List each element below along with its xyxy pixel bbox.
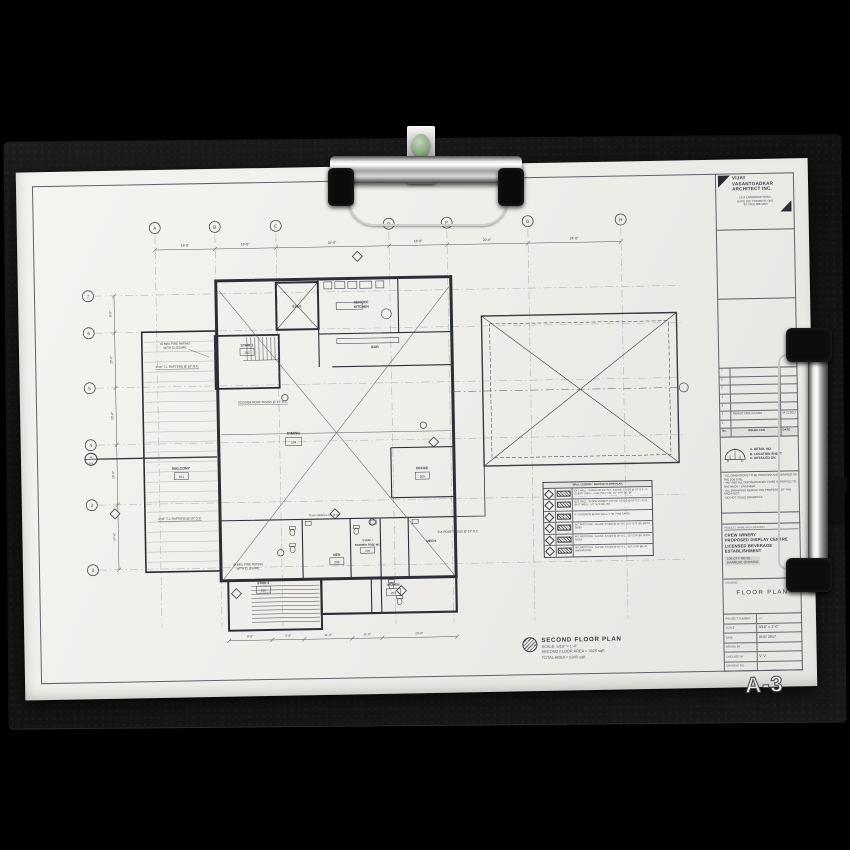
dim-top: 16'-0": [414, 239, 424, 243]
clip-metal-bar: [330, 156, 522, 183]
plan-title-block: SECOND FLOOR PLAN SCALE: 3/16" = 1'-0" S…: [522, 636, 622, 661]
room-tag-women: 207: [391, 591, 397, 595]
info-label: PROJECT NUMBER: [724, 614, 757, 623]
grid-col-label: A: [153, 226, 157, 231]
logo-triangle-icon: [780, 200, 791, 211]
wall-hatch-swatch: [556, 511, 573, 522]
legend-text: INT. PARTITION : 2x6 WD. STUDS @ 16" O.C…: [573, 522, 652, 531]
room-tag-balcony: 201: [179, 475, 185, 479]
dim-top: 24'-0": [570, 236, 580, 240]
room-tag-stair1: 202: [244, 351, 250, 355]
clip-rubber-grip: [786, 328, 832, 362]
grid-lines: [93, 226, 687, 629]
note-travel-distance: Travel distance 60' (9 m): [309, 513, 340, 518]
info-label: SCALE: [724, 624, 757, 633]
info-label: DATE: [724, 633, 757, 642]
room-label-men: MEN: [333, 553, 341, 557]
room-label-bar: BAR: [371, 345, 379, 349]
room-tag-men: 208: [334, 560, 340, 564]
building-walls: [141, 277, 457, 633]
legend-text: EXT. WALL : STONE VENEER, 2x6 WD. STUDS …: [573, 499, 652, 508]
rev-no-header: No.: [721, 429, 732, 437]
kitchen-fixtures: [324, 281, 399, 344]
architect-name-3: ARCHITECT INC.: [732, 186, 773, 192]
room-tag-staff: 209: [365, 549, 370, 553]
plan-title: SECOND FLOOR PLAN: [541, 636, 621, 644]
rev-no: 6: [720, 377, 731, 385]
dim-top: 24'-0": [328, 241, 338, 245]
room-label-staff2: BARRIER FREE WC: [355, 542, 381, 546]
title-block-empty-box: [717, 229, 796, 299]
room-label-mech: MECH.: [426, 539, 436, 543]
rev-no: 5: [720, 386, 731, 394]
legend-text: INT. PARTITION : 2x4 WD. STUDS @ 16" O.C…: [574, 545, 653, 554]
wall-hatch-swatch: [556, 523, 573, 534]
wall-hatch-swatch: [556, 534, 573, 545]
detail-key-b: B: [727, 459, 729, 463]
door-tags: [275, 392, 429, 556]
rev-no: 4: [720, 394, 731, 402]
sheet-number: A-3: [744, 670, 783, 700]
room-label-staff1: STAFF /: [362, 538, 372, 542]
section-marker-sheet: A-5: [89, 461, 94, 465]
info-value: [757, 665, 802, 666]
dim-left: 8'-0": [108, 311, 112, 317]
note-fire-rating-1b: WITH CLOSURE: [163, 345, 186, 349]
room-label-stair1: STAIR 1: [241, 343, 254, 347]
info-value: 3/16" = 1'-0": [757, 625, 803, 631]
room-label-stair2: STAIR 2: [257, 581, 269, 585]
clip-green-button: [412, 134, 430, 157]
note-scissor-truss: SCISSOR ROOF TRUSS @ 24" O.C.: [238, 400, 288, 405]
project-location-2: HARROW, ONTARIO: [727, 560, 759, 565]
wall-hatch-swatch: [556, 500, 573, 511]
grid-row-bubbles: [82, 291, 98, 576]
section-marker-letter: A: [90, 455, 93, 459]
wall-type-symbol: [544, 488, 556, 499]
clip-rubber-grip: [498, 168, 524, 206]
room-label-elev: ELEV.: [292, 304, 302, 308]
legend-row: INT. PARTITION : 2x4 WD. STUDS @ 16" O.C…: [545, 544, 653, 556]
legend-text: EXT. WALL : SIDING ON 3/4" PLY., 2x6 WD.…: [573, 488, 652, 497]
bottom-dimension-line: [227, 635, 459, 643]
grid-col-label: H: [619, 217, 622, 222]
room-label-office: OFFICE: [416, 466, 429, 470]
clip-rubber-grip: [786, 558, 832, 592]
wall-legend: WALL LEGEND : SECOND FLOOR PLAN EXT. WAL…: [542, 480, 653, 558]
grid-row-label: 4: [89, 443, 92, 448]
info-row: DRAWING NO.: [725, 661, 803, 671]
room-tag-office: 205: [420, 475, 426, 479]
wall-type-symbol: [544, 523, 556, 534]
wall-type-symbol: [544, 511, 556, 522]
rev-no: 1: [720, 420, 731, 428]
dim-bottom: 5'-0": [285, 634, 291, 638]
clip-rubber-grip: [328, 168, 354, 206]
clipboard-photo: 16'-0" 16'-0" 24'-0" 16'-0" 20'-6" 24'-0…: [0, 0, 850, 850]
room-label-dining: DINING: [287, 431, 300, 435]
dim-left: 15'-6": [110, 412, 114, 420]
rev-no: 3: [720, 403, 731, 411]
logo-triangle-icon: [718, 175, 730, 187]
note-rafters-1: 2"x6" T.J. RAFTERS @ 16" O.C.: [156, 364, 200, 369]
dim-top: 16'-0": [241, 242, 251, 246]
dim-top: 20'-6": [483, 238, 493, 242]
left-dimension-line: [112, 294, 121, 572]
dim-bottom: 20'-0": [415, 631, 423, 635]
info-label: DRAWN BY: [724, 643, 757, 652]
room-label-balcony: BALCONY: [172, 466, 190, 470]
grid-col-label: G: [526, 219, 530, 224]
window-tags: [105, 250, 441, 601]
section-marker: [85, 451, 217, 465]
info-value: V. V.: [757, 653, 803, 659]
info-value: [757, 646, 802, 647]
room-tag-dining: 204: [291, 440, 297, 444]
top-dimension-line: [153, 239, 623, 252]
note-rafters-2: 2"x6" T.J. RAFTERS @ 16" O.C.: [158, 516, 202, 521]
floor-plan-drawing: 16'-0" 16'-0" 24'-0" 16'-0" 20'-6" 24'-0…: [34, 180, 703, 662]
north-hatch-icon: [522, 637, 537, 652]
grid-row-label: 6: [87, 331, 90, 336]
info-value: AUG 2017: [757, 634, 803, 640]
grid-row-label: 3: [90, 503, 93, 508]
legend-text: 8" CONCRETE BLOCK WALL, 2 HR. FIRE RATED: [573, 512, 652, 518]
grid-row-label: 5: [88, 386, 91, 391]
dim-left: 17'-6": [112, 533, 116, 541]
wall-type-symbol: [545, 546, 557, 557]
legend-text: INT. PARTITION : 2x4 WD. STUDS @ 16" O.C…: [573, 534, 652, 543]
balcony-rafters: [144, 341, 219, 562]
dim-left: 16'-0": [111, 471, 115, 479]
room-number-boxes: [172, 345, 432, 600]
drawing-sheet: 16'-0" 16'-0" 24'-0" 16'-0" 20'-6" 24'-0…: [16, 158, 818, 700]
clip-metal-bar: [808, 330, 828, 590]
clipboard-clip-top: [330, 126, 522, 236]
rev-no: 7: [719, 369, 730, 377]
note-roof-truss: 2x6 ROOF TRUSS @ 24" O.C.: [438, 529, 480, 534]
clip-wire-handle: [348, 182, 508, 226]
detail-marker-icon: A B C: [723, 446, 747, 462]
wall-type-symbol: [544, 500, 556, 511]
room-label-women: WOMEN: [387, 583, 400, 587]
sheet-number-box: A-3: [725, 670, 804, 700]
rev-no: 2: [720, 412, 731, 420]
info-table: PROJECT NUMBER — SCALE 3/16" = 1'-0" DAT…: [724, 613, 803, 671]
dim-left: 15'-0": [109, 356, 113, 364]
grid-row-label: 7: [87, 294, 90, 299]
grid-col-label: C: [274, 224, 278, 229]
roof-truss-lines: [219, 287, 454, 579]
wall-hatch-swatch: [557, 546, 574, 557]
info-label: DRAWING NO.: [725, 662, 758, 671]
room-label-kitchen2: KITCHEN: [354, 305, 370, 309]
info-value: —: [756, 615, 802, 621]
info-label: CHECKED BY: [725, 652, 758, 661]
datum-line: [453, 383, 689, 396]
grid-col-label: B: [213, 225, 216, 230]
clipboard-clip-right: [772, 328, 850, 594]
room-tag-stair2: 210: [261, 588, 267, 592]
wall-type-symbol: [544, 534, 556, 545]
wall-hatch-swatch: [556, 488, 573, 499]
architect-block: VIJAY VASANTGADKAR ARCHITECT INC. 1414 L…: [716, 172, 795, 230]
dim-bottom: 8'-0": [247, 634, 253, 638]
dim-top: 16'-0": [181, 243, 191, 247]
clip-lever: [829, 475, 848, 522]
note-fire-rating-2b: WITH CLOSURE: [236, 566, 259, 570]
grid-row-label: 2: [92, 568, 95, 573]
dim-bottom: 11'-0": [324, 633, 331, 637]
dim-bottom: 11'-0": [363, 632, 370, 636]
